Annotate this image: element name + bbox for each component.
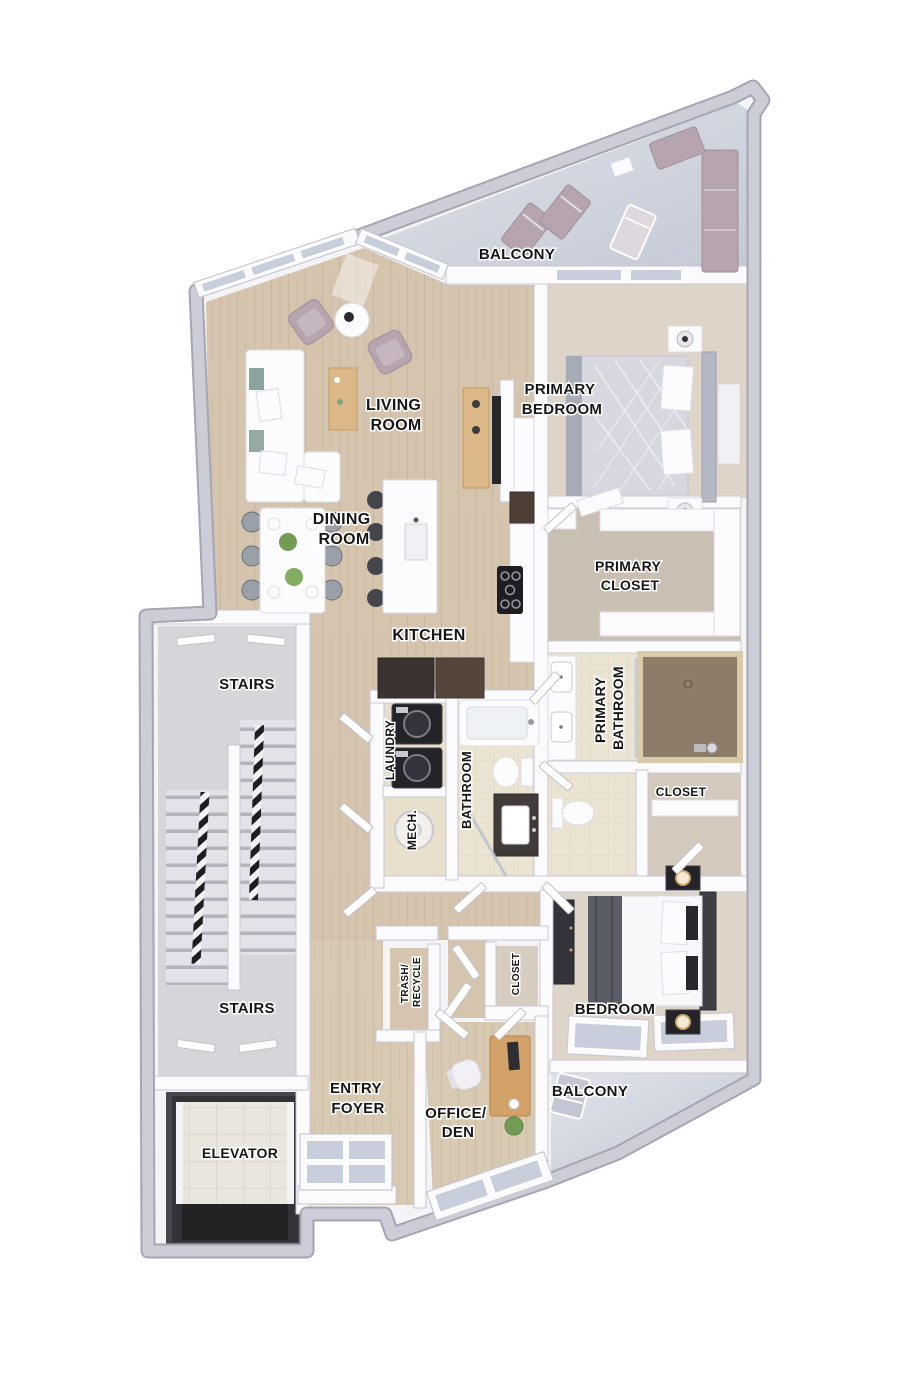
label-mech: MECH. [405,810,419,850]
wall [446,695,458,880]
bedroom-window [567,1016,649,1058]
label-trash-recycle: TRASH/ RECYCLE [400,957,423,1007]
label-laundry: LAUNDRY [383,720,397,780]
counter-south [436,658,484,698]
closet-hall-detail [652,800,738,816]
faucet [414,518,419,523]
stool [367,557,385,575]
teal-pillow [249,430,264,452]
stool [367,491,385,509]
wall [448,926,548,940]
stair-spine-wall [228,745,240,990]
foyer-window [300,1134,392,1190]
tv [492,396,501,484]
desk-decor [509,1099,519,1109]
console-table [329,368,357,430]
bed-throw [588,896,622,1006]
wall [535,1016,548,1166]
sink [502,806,529,844]
shower-head [707,743,717,753]
wall [485,942,496,1014]
pillow [661,901,689,944]
bed-skirt [566,356,582,496]
elevator-rail [176,1102,183,1204]
counter-north [514,418,534,496]
svg-text:TRASH/ RECYCLE: TRASH/ RECYCLE [400,957,423,1007]
shower-control [694,744,706,752]
label-stairs-upper: STAIRS [219,676,275,693]
elevator-rail [287,1102,294,1204]
island-sink [405,524,427,560]
elevator-detail [166,1092,304,1244]
pillow [661,951,689,994]
floor-plan-page: BALCONY LIVING ROOM PRIMARY BEDROOM DINI… [0,0,911,1388]
elevator-pit [182,1204,288,1240]
pillow [661,429,694,475]
label-kitchen: KITCHEN [392,627,465,644]
label-balcony-bottom: BALCONY [552,1083,628,1100]
label-balcony-top: BALCONY [479,246,555,263]
accent-pillow [686,906,698,940]
lamp [676,1015,690,1029]
label-bedroom: BEDROOM [575,1001,655,1018]
pillow [256,389,282,422]
toilet-tank [552,798,563,828]
wall [376,926,438,940]
stool [367,589,385,607]
plant [285,568,303,586]
plant [505,1117,523,1135]
wall [152,1076,308,1090]
wall [550,1060,748,1073]
accent-pillow [686,956,698,990]
label-stairs-lower: STAIRS [219,1000,275,1017]
primary-bedroom-window [630,269,682,281]
wall-tv-stub [500,380,514,502]
stair-flight-right [240,720,298,955]
wall [636,770,648,882]
label-closet-entry: CLOSET [511,953,522,995]
dark-cabinet [510,492,534,524]
primary-bedroom-window [556,269,622,281]
label-closet-hall: CLOSET [656,785,707,799]
pillow [661,365,694,411]
closet-shelf [652,800,738,816]
balcony-sofa [702,150,738,272]
toilet-tank [521,758,533,786]
counter-south [378,658,434,698]
label-bathroom: BATHROOM [459,751,474,829]
tub-faucet [528,719,534,725]
wardrobe [554,900,574,984]
toilet [562,801,594,825]
teal-pillow [249,368,264,390]
bathtub-basin [467,707,527,739]
primary-bedroom-furniture [566,326,740,524]
wall [376,1030,440,1042]
headboard [702,352,716,502]
plant [279,533,297,551]
label-elevator: ELEVATOR [202,1145,278,1161]
wall [296,612,310,1214]
dresser [718,384,740,464]
shower [640,654,740,760]
floor-plan-canvas: BALCONY LIVING ROOM PRIMARY BEDROOM DINI… [0,0,911,1388]
pillow [259,451,287,476]
toilet [493,757,519,787]
laptop [507,1042,520,1071]
wall [370,690,384,888]
coffee-table-decor [344,312,354,322]
wall [428,944,440,1040]
closet-shelf [714,509,740,636]
